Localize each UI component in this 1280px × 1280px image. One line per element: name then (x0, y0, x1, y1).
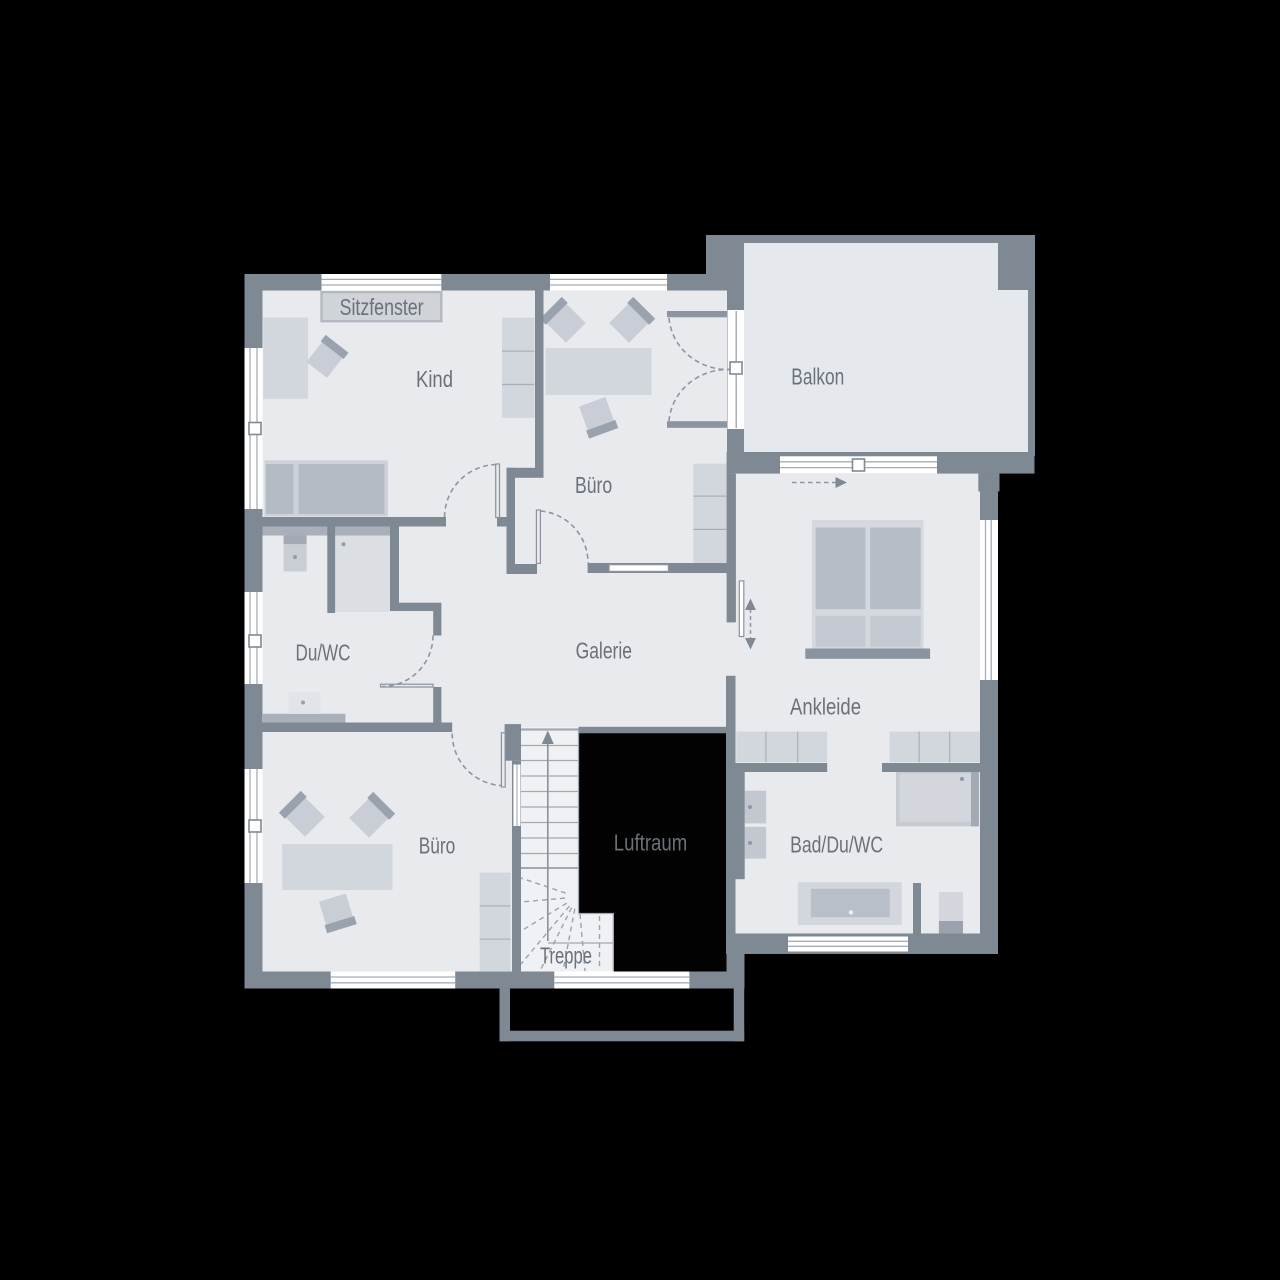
svg-text:Balkon: Balkon (791, 364, 844, 390)
svg-text:Bad/Du/WC: Bad/Du/WC (790, 832, 883, 858)
svg-text:Büro: Büro (575, 472, 612, 498)
svg-text:Büro: Büro (419, 833, 456, 859)
svg-text:Ankleide: Ankleide (790, 694, 861, 720)
svg-text:Kind: Kind (416, 366, 453, 392)
svg-text:Treppe: Treppe (540, 943, 592, 969)
svg-text:Luftraum: Luftraum (614, 830, 688, 856)
svg-text:Galerie: Galerie (576, 638, 632, 664)
svg-text:Du/WC: Du/WC (296, 640, 351, 666)
svg-text:Sitzfenster: Sitzfenster (340, 294, 424, 320)
